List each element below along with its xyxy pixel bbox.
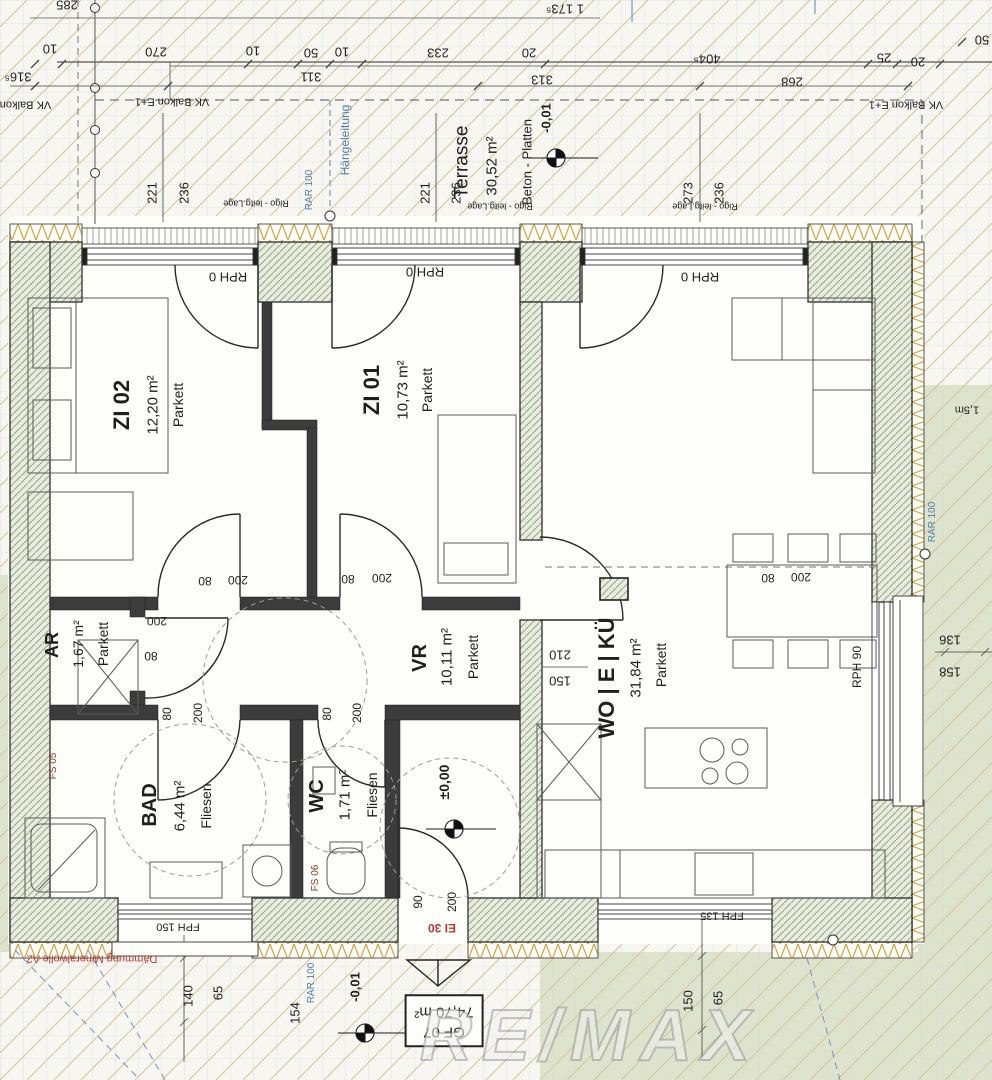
room-name-wo: WO | E | KÜ [596, 617, 618, 738]
room-area-bad: 6,44 m² [173, 781, 188, 832]
dim-top: 285 [56, 0, 78, 12]
dim-niche: 150 [549, 675, 571, 688]
vk-balkon-label: VK Balkon E+1 [135, 96, 209, 107]
level-outside: -0,01 [349, 972, 362, 1002]
fph135-label: FPH 135 [700, 910, 743, 921]
haengeleitung-label: Hängeleitung [339, 105, 351, 176]
dim-top: 270 [145, 46, 167, 59]
dim-top: 1 173⁵ [546, 3, 584, 16]
dim-bottom: 154 [289, 1002, 302, 1024]
dim-top: 268 [781, 76, 803, 89]
room-name-bad: BAD [140, 783, 160, 826]
dim-top: 404⁵ [693, 53, 720, 66]
rar-label: RAR 100 [307, 963, 317, 1004]
dim-top: 10 [43, 43, 57, 56]
dim-top: 20 [522, 47, 536, 60]
rigo-label: Rigo - leitg.Lage [223, 199, 289, 208]
dim-door: 80 [198, 575, 211, 587]
remax-watermark: RE/MAX [420, 995, 760, 1077]
room-name-ar: AR [43, 632, 61, 658]
room-floor-vr: Parkett [466, 635, 480, 679]
dim-door: 200 [228, 574, 248, 586]
dim-right: 158 [939, 666, 961, 679]
dim-terrace: 273 [682, 182, 695, 204]
room-area-terrasse: 30,52 m² [485, 136, 500, 195]
dim-door-wc: 200 [351, 703, 363, 723]
dim-door-entry: 90 [412, 895, 424, 908]
room-floor-wo: Parkett [654, 643, 668, 687]
rph0-label: RPH 0 [681, 271, 719, 284]
dim-terrace: 236 [713, 182, 726, 204]
dim-top: 25 [877, 52, 891, 65]
dim-terrace: 221 [146, 182, 159, 204]
dim-top: 233 [427, 47, 449, 60]
room-name-wc: WC [307, 779, 327, 812]
room-area-ar: 1,67 m² [71, 620, 85, 667]
dim-top: 10 [246, 45, 260, 58]
room-name-terrasse: Terrasse [453, 126, 472, 199]
ei30-label: EI 30 [428, 922, 456, 934]
dim-door-entry: 200 [446, 892, 458, 912]
room-name-zi01: ZI 01 [361, 365, 383, 415]
room-floor-ar: Parkett [96, 622, 110, 666]
building-interior [8, 216, 924, 944]
room-area-zi01: 10,73 m² [396, 360, 411, 419]
daemmung-label: Dämmung Mineralwolle A2 [27, 953, 158, 964]
dim-bottom: 140 [182, 985, 195, 1007]
dim-door-bad: 80 [161, 707, 173, 720]
level-entry: ±0,00 [437, 765, 451, 800]
dim-door: 200 [372, 572, 392, 584]
vk-balkon-label: VK Balkon E+1 [0, 99, 51, 110]
dim-terrace: 236 [178, 182, 191, 204]
vk-balkon-label: VK Balkon E+1 [869, 99, 943, 110]
dim-terrace: 221 [419, 182, 432, 204]
fs05-label: FS 05 [49, 753, 59, 780]
fph150-label: FPH 150 [156, 921, 199, 932]
room-floor-terrasse: Beton - Platten [521, 119, 534, 205]
dim-door: 80 [761, 572, 774, 584]
rph90-label: RPH 90 [851, 646, 863, 688]
room-floor-bad: Fliesen [199, 783, 213, 828]
rar-label: RAR 100 [928, 502, 938, 543]
dim-door-wc: 80 [321, 707, 333, 720]
floor-plan-page: 285 1 173⁵ 10 270 10 50 10 233 20 404⁵ 2… [0, 0, 992, 1080]
room-name-vr: VR [410, 644, 430, 672]
level-terrace: -0,01 [540, 103, 553, 133]
dim-top: 313 [531, 74, 553, 87]
fs06-label: FS 06 [311, 865, 321, 892]
dim-door-ar: 200 [147, 615, 167, 627]
dim-top: 50 [304, 47, 318, 60]
rph0-label: RPH 0 [209, 271, 247, 284]
dim-door-bad: 200 [192, 703, 204, 723]
room-area-zi02: 12,20 m² [146, 375, 161, 434]
dim-top: 20 [911, 56, 925, 69]
dim-top: 311 [301, 71, 322, 84]
room-floor-wc: Fliesen [365, 772, 379, 817]
dist-label: 1,5m [955, 404, 979, 415]
dim-door: 80 [341, 573, 354, 585]
room-area-wo: 31,84 m² [629, 638, 644, 697]
chimney-symbol [600, 578, 628, 600]
room-area-vr: 10,11 m² [440, 628, 455, 686]
dim-right: 136 [939, 634, 961, 647]
room-name-zi02: ZI 02 [111, 380, 133, 430]
room-area-wc: 1,71 m² [338, 770, 353, 821]
dim-door-ar: 80 [144, 650, 157, 662]
rph0-label: RPH 0 [406, 266, 444, 279]
dim-bottom: 65 [212, 986, 225, 1000]
dim-niche: 210 [549, 649, 571, 662]
rar-label: RAR 100 [305, 170, 315, 211]
dim-top: 10 [335, 46, 349, 59]
room-floor-zi01: Parkett [420, 368, 434, 412]
room-floor-zi02: Parkett [171, 383, 185, 427]
dim-door: 200 [791, 571, 811, 583]
dim-top: 50 [975, 34, 989, 47]
dim-top: 316⁵ [4, 71, 31, 84]
